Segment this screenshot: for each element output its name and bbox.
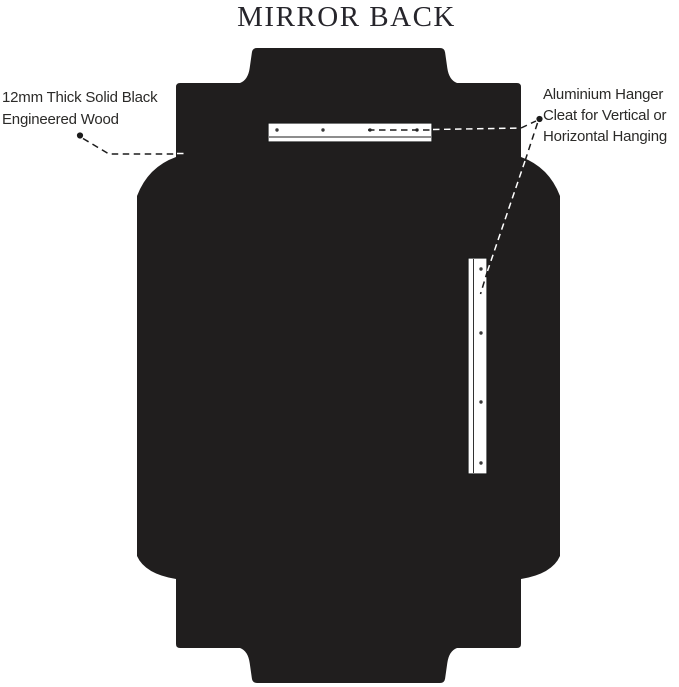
horizontal-hanger-cleat xyxy=(268,123,432,142)
hanger-label: Aluminium Hanger Cleat for Vertical or H… xyxy=(543,84,667,147)
diagram-title: MIRROR BACK xyxy=(0,2,679,32)
wood-label-line-1: 12mm Thick Solid Black xyxy=(2,87,157,109)
leader-dash-on-white xyxy=(521,121,536,128)
hanger-label-line-1: Aluminium Hanger xyxy=(543,84,667,105)
screw-hole-icon xyxy=(479,331,482,334)
leader-dot xyxy=(536,116,542,122)
leader-dot xyxy=(77,132,83,138)
leader-line-wood xyxy=(77,132,186,154)
screw-hole-icon xyxy=(321,128,324,131)
mirror-back-panel xyxy=(137,48,560,683)
leader-dash-on-white xyxy=(83,139,176,155)
screw-hole-icon xyxy=(479,400,482,403)
hanger-label-line-2: Cleat for Vertical or xyxy=(543,105,667,126)
vertical-hanger-cleat xyxy=(468,258,487,474)
screw-hole-icon xyxy=(479,461,482,464)
wood-label-line-2: Engineered Wood xyxy=(2,109,157,131)
horizontal-cleat-bar xyxy=(268,123,432,142)
leader-dash-on-white xyxy=(525,123,538,161)
hanger-label-line-3: Horizontal Hanging xyxy=(543,126,667,147)
screw-hole-icon xyxy=(275,128,278,131)
screw-hole-icon xyxy=(479,267,482,270)
mirror-back-diagram: MIRROR BACK 12mm Thick Solid Black Engin… xyxy=(0,0,679,687)
wood-label: 12mm Thick Solid Black Engineered Wood xyxy=(2,87,157,131)
vertical-cleat-bar xyxy=(468,258,487,474)
